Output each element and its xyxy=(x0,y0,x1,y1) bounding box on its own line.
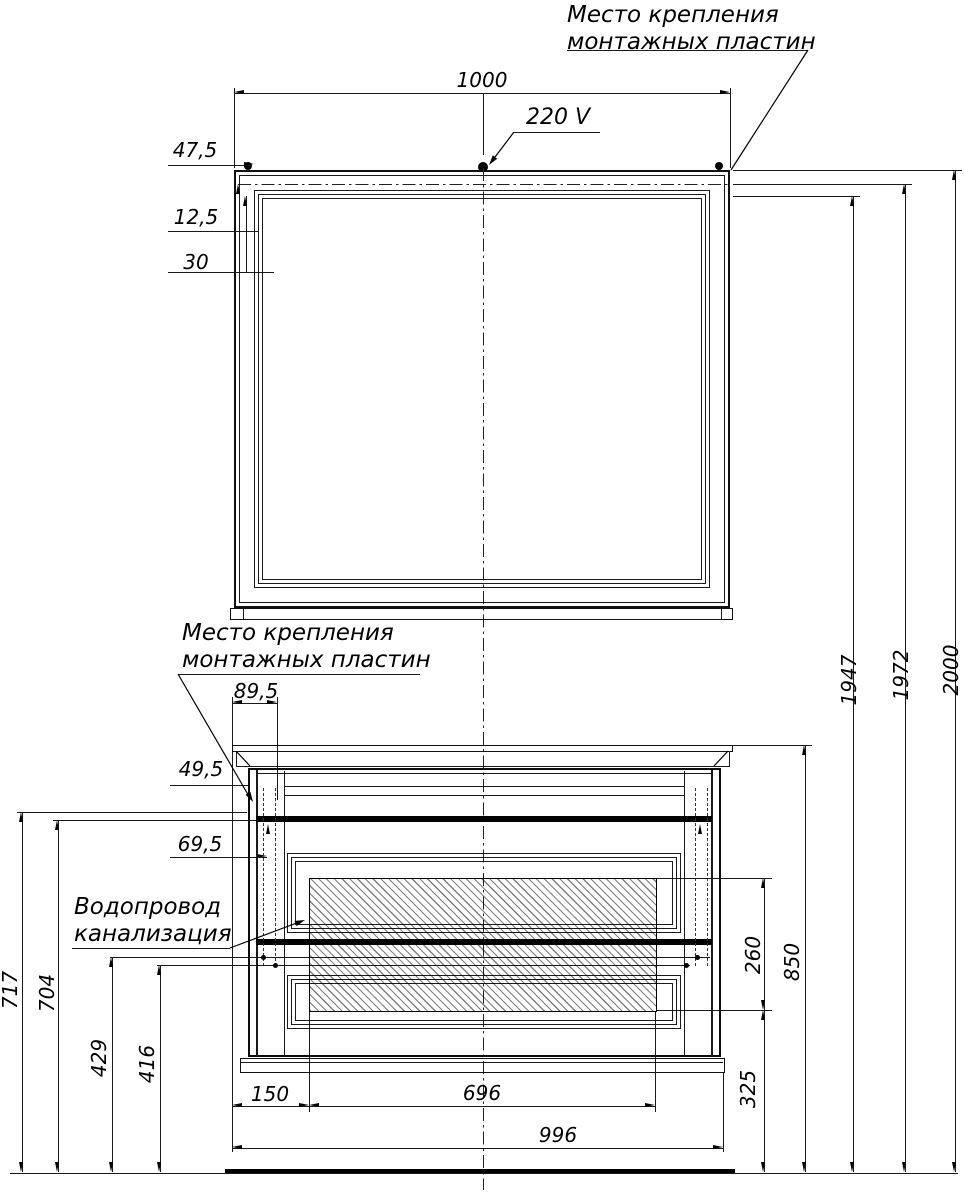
level-ext-717 xyxy=(17,812,247,813)
water-level-line-429 xyxy=(110,957,710,958)
mirror-mount-annotation-line2: монтажных пластин xyxy=(567,29,816,56)
arrow xyxy=(850,196,854,206)
dim-line-12-5 xyxy=(168,231,258,232)
arrow xyxy=(234,90,244,94)
dim-label-325: 325 xyxy=(737,1057,759,1121)
arrow xyxy=(645,1103,655,1107)
arrow xyxy=(952,170,956,180)
dim-line-429 xyxy=(112,957,113,1172)
dim-line-30 xyxy=(168,272,274,273)
cabinet-mount-annotation-line1: Место крепления xyxy=(182,620,431,647)
arrow xyxy=(109,957,113,967)
arrow xyxy=(243,196,247,206)
dim-label-89-5: 89,5 xyxy=(232,681,280,701)
annotation-underline xyxy=(178,674,420,675)
arrow xyxy=(850,1162,854,1172)
dim-label-704: 704 xyxy=(36,961,58,1025)
extension-line xyxy=(730,88,731,168)
mirror-base-tick-left xyxy=(243,608,244,619)
dim-label-850: 850 xyxy=(781,930,803,994)
arrow xyxy=(761,878,765,888)
dim-label-69-5: 69,5 xyxy=(175,834,225,854)
arrow xyxy=(244,162,254,166)
dim-line-47-5 xyxy=(168,165,252,166)
arrow xyxy=(157,965,161,975)
arrow xyxy=(761,1010,765,1020)
dim-label-49-5: 49,5 xyxy=(176,759,226,779)
dim-line-49-5 xyxy=(170,785,250,786)
top-drawer-line xyxy=(284,786,684,787)
arrow xyxy=(713,1145,723,1149)
arrow xyxy=(19,812,23,822)
hatch-bottom-ext xyxy=(657,1010,772,1011)
arrow xyxy=(232,1145,242,1149)
level-dot xyxy=(695,955,700,960)
arrow xyxy=(157,1162,161,1172)
dim-label-30: 30 xyxy=(176,252,216,272)
dim-label-47-5: 47,5 xyxy=(170,140,220,160)
ext-1947 xyxy=(733,196,860,197)
arrow xyxy=(232,1103,242,1107)
dim-line-717 xyxy=(22,812,23,1172)
power-label: 220 V xyxy=(518,107,598,129)
mounting-plate-hidden-edge xyxy=(707,788,708,966)
extension-line xyxy=(309,1012,310,1112)
extension-line xyxy=(234,88,235,168)
arrow xyxy=(309,1103,319,1107)
mirror-base-strip xyxy=(230,608,733,620)
cabinet-mount-annotation-line2: монтажных пластин xyxy=(182,647,431,674)
cabinet-stile-left xyxy=(284,771,285,1056)
arrow xyxy=(761,1000,765,1010)
extension-line xyxy=(655,1012,656,1112)
dim-line-996 xyxy=(232,1148,723,1149)
dim-line-696 xyxy=(309,1106,655,1107)
mounting-plate-hidden-edge xyxy=(275,788,276,966)
mounting-plate-hidden-edge xyxy=(695,788,696,966)
dim-extension xyxy=(246,196,247,272)
power-label-underline xyxy=(514,132,600,133)
level-ext-704 xyxy=(53,820,256,821)
dim-label-1947: 1947 xyxy=(838,648,860,712)
cabinet-stile-right xyxy=(684,771,685,1056)
arrow xyxy=(266,824,270,834)
dim-line-325 xyxy=(764,1010,765,1172)
plumbing-zone-hatch xyxy=(309,878,657,1012)
counter-ext xyxy=(731,745,812,746)
mirror-molding-3 xyxy=(262,198,702,580)
dim-label-996: 996 xyxy=(522,1125,594,1145)
arrow xyxy=(299,1103,309,1107)
mounting-plate-dot-right xyxy=(715,162,723,170)
dim-line-416 xyxy=(160,965,161,1172)
mirror-mount-annotation-line1: Место крепления xyxy=(567,2,816,29)
dim-line-150 xyxy=(232,1106,309,1107)
arrow xyxy=(761,1162,765,1172)
arrow xyxy=(109,1162,113,1172)
annotation-underline xyxy=(72,948,230,949)
arrow xyxy=(952,1162,956,1172)
level-dot xyxy=(261,955,266,960)
dim-label-260: 260 xyxy=(742,923,764,987)
plumbing-annotation: Водопровод канализация xyxy=(74,894,232,947)
arrow xyxy=(236,184,240,194)
arrow xyxy=(902,1162,906,1172)
plinth-bevel-line xyxy=(241,1062,723,1063)
cabinet-plinth xyxy=(240,1058,725,1073)
arrow xyxy=(720,90,730,94)
dim-label-717: 717 xyxy=(0,958,21,1022)
mounting-rail-bar xyxy=(256,816,712,822)
arrow xyxy=(698,824,702,834)
dim-label-416: 416 xyxy=(136,1032,158,1096)
ext-2000 xyxy=(733,170,962,171)
dim-label-2000: 2000 xyxy=(940,638,962,702)
dim-line-1000 xyxy=(234,93,730,94)
extension-line xyxy=(483,93,484,155)
ext-1972 xyxy=(733,184,912,185)
dim-line-850 xyxy=(805,745,806,1172)
mirror-base-tick-right xyxy=(721,608,722,619)
extension-line xyxy=(723,1073,724,1152)
mounting-plate-hidden-edge xyxy=(263,788,264,966)
plumbing-annotation-line1: Водопровод xyxy=(74,894,232,921)
arrow xyxy=(232,700,242,704)
hatch-top-ext xyxy=(657,878,772,879)
arrow xyxy=(55,820,59,830)
dim-label-696: 696 xyxy=(450,1083,514,1103)
plumbing-annotation-line2: канализация xyxy=(74,921,232,948)
arrow xyxy=(902,184,906,194)
level-dot xyxy=(273,963,278,968)
dim-label-429: 429 xyxy=(88,1026,110,1090)
arrow xyxy=(55,1162,59,1172)
level-dot xyxy=(684,963,689,968)
countertop-face xyxy=(236,751,730,767)
cabinet-mount-annotation: Место крепления монтажных пластин xyxy=(182,620,431,673)
dim-label-1000: 1000 xyxy=(447,70,517,90)
dim-label-12-5: 12,5 xyxy=(171,207,221,227)
arrow xyxy=(802,1162,806,1172)
arrow xyxy=(267,700,277,704)
dim-label-1972: 1972 xyxy=(890,643,912,707)
top-drawer-line xyxy=(284,795,684,796)
floor-line-thick xyxy=(225,1169,735,1173)
cabinet-side-panel-left xyxy=(256,770,258,1056)
cabinet-rail-line xyxy=(256,773,712,774)
water-level-line-416 xyxy=(157,965,690,966)
dim-label-150: 150 xyxy=(246,1084,294,1104)
installation-drawing: 1000 220 V Место крепления монтажных пла… xyxy=(0,0,964,1200)
annotation-underline xyxy=(567,50,808,51)
floor-line xyxy=(10,1173,958,1174)
extension-line xyxy=(232,697,233,1152)
cabinet-side-panel-right xyxy=(711,770,713,1056)
arrow xyxy=(19,1162,23,1172)
arrow xyxy=(802,745,806,755)
mirror-mount-annotation: Место крепления монтажных пластин xyxy=(567,2,816,55)
